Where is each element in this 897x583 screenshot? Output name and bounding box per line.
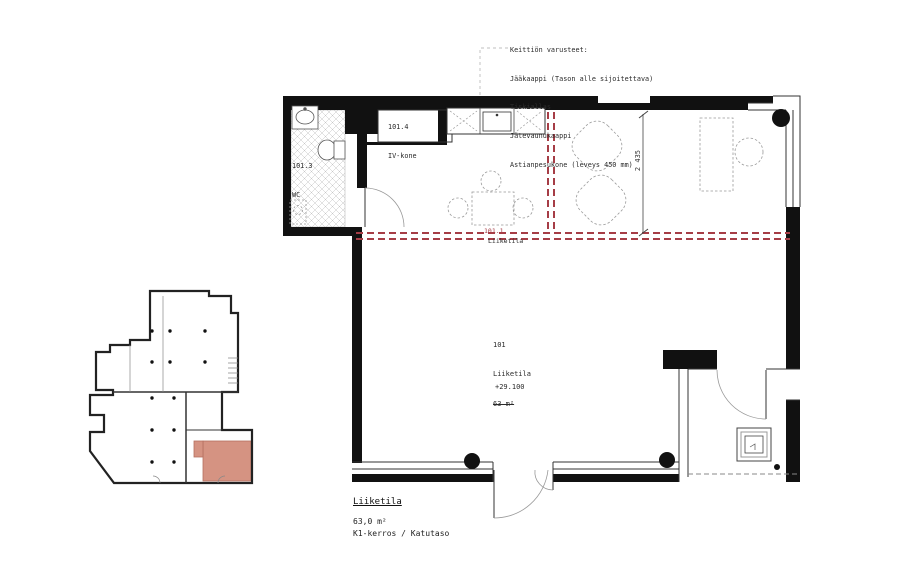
floor-plan-sheet: Keittiön varusteet: Jääkaappi (Tason all… bbox=[0, 0, 897, 583]
toilet-bowl-icon bbox=[318, 140, 336, 160]
faucet-icon bbox=[496, 114, 499, 117]
wall-iv-kitchen bbox=[438, 108, 447, 144]
level-mark: +29.100 bbox=[495, 383, 525, 393]
note-leader-line bbox=[480, 48, 508, 96]
wall-top-step bbox=[748, 96, 773, 103]
wc-room-tag: 101.3 WC bbox=[292, 143, 312, 210]
title-block-floor: K1-kerros / Katutaso bbox=[353, 529, 449, 539]
dining-table bbox=[472, 192, 514, 225]
main-room-number: 101 bbox=[493, 340, 531, 350]
chair bbox=[448, 198, 468, 218]
main-room-name: Liiketila bbox=[493, 369, 531, 379]
wall-chunk-wc-iv bbox=[345, 96, 378, 134]
kitchen-note-item: Jääkaappi (Tason alle sijoitettava) bbox=[510, 75, 653, 84]
main-room-tag: 101 Liiketila 63 m² bbox=[493, 321, 531, 418]
highlighted-unit bbox=[203, 441, 251, 481]
zone-name: Liiketila bbox=[488, 237, 523, 247]
kitchen-equipment-note: Keittiön varusteet: Jääkaappi (Tason all… bbox=[510, 27, 653, 180]
zone-number: 101.1 bbox=[484, 227, 504, 237]
wall-right-upper bbox=[786, 207, 800, 369]
iv-room-number: 101.4 bbox=[388, 123, 417, 133]
key-plan bbox=[90, 291, 252, 483]
wall-right-lower bbox=[786, 400, 800, 482]
sill-right bbox=[553, 474, 679, 482]
plan-drawing bbox=[0, 0, 897, 583]
wall-wc-bottom bbox=[283, 227, 362, 236]
alcove-wall bbox=[679, 369, 688, 482]
title-block-name: Liiketila bbox=[353, 498, 402, 508]
kitchen-note-item: Jätevaunukaappi bbox=[510, 132, 653, 141]
kitchen-note-heading: Keittiön varusteet: bbox=[510, 46, 653, 55]
column bbox=[464, 453, 480, 469]
kitchen-note-item: Astianpesukone (leveys 450 mm) bbox=[510, 161, 653, 170]
wc-name: WC bbox=[292, 191, 312, 201]
wall-alcove bbox=[663, 350, 717, 369]
entrance-sideleaf-swing bbox=[535, 470, 553, 490]
iv-room-name: IV-kone bbox=[388, 152, 417, 162]
desk bbox=[700, 118, 733, 191]
highlighted-unit-tab bbox=[194, 441, 203, 457]
chair bbox=[513, 198, 533, 218]
sill-left bbox=[352, 474, 493, 482]
wc-door-swing bbox=[365, 188, 404, 227]
washbasin-tap-icon bbox=[304, 108, 307, 111]
desk-chair bbox=[735, 138, 763, 166]
wall-left-lower bbox=[352, 227, 362, 463]
toilet-tank-icon bbox=[334, 141, 345, 159]
right-door-jambs bbox=[786, 369, 800, 400]
grid-line bbox=[130, 296, 163, 392]
column-small bbox=[774, 464, 780, 470]
dimension-text: 2 435 bbox=[634, 150, 644, 171]
column bbox=[772, 109, 790, 127]
wc-number: 101.3 bbox=[292, 162, 312, 172]
shaft bbox=[737, 428, 771, 461]
main-room-area: 63 m² bbox=[493, 399, 531, 409]
kitchen-note-item: Tiskiallas bbox=[510, 103, 653, 112]
column bbox=[659, 452, 675, 468]
chair bbox=[481, 171, 501, 191]
title-block-area: 63,0 m² bbox=[353, 517, 387, 527]
entrance-door-swing bbox=[494, 470, 548, 518]
iv-room-tag: 101.4 IV-kone bbox=[388, 104, 417, 171]
stairs-icon bbox=[228, 358, 238, 383]
alcove-door-swing bbox=[717, 370, 766, 419]
